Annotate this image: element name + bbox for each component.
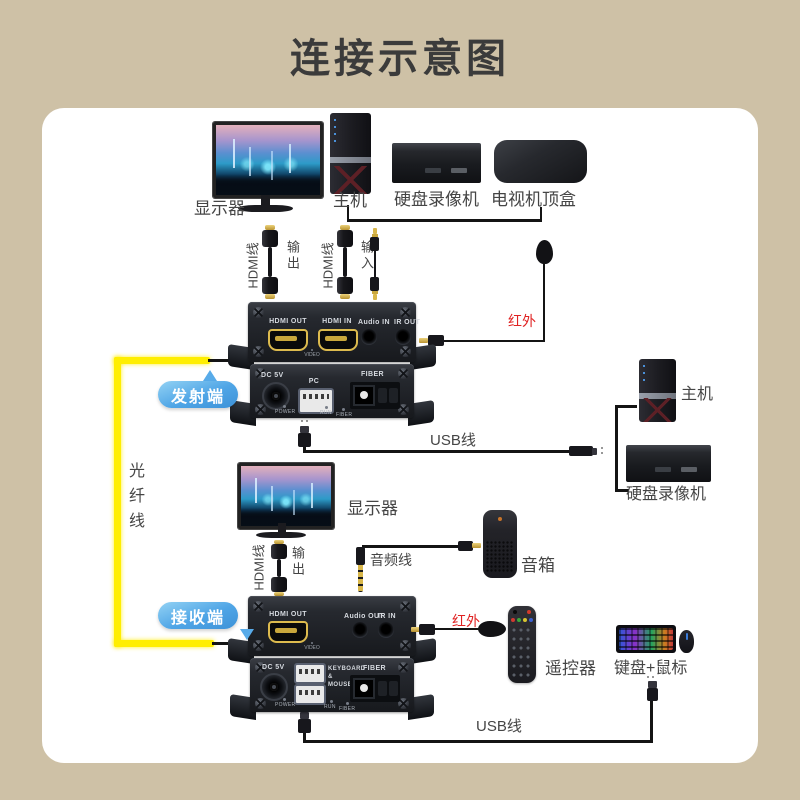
hdmi-cable-icon	[271, 540, 287, 596]
audio-in-port-label: Audio IN	[358, 319, 390, 326]
ir-plug-tip	[419, 338, 428, 343]
stb-label: 电视机顶盒	[491, 185, 576, 210]
hdmi-port	[268, 621, 308, 643]
power-led-label: POWER	[275, 702, 295, 708]
dc-port-label: DC 5V	[261, 372, 284, 379]
right-pc-label: 主机	[681, 380, 713, 404]
screw-icon	[253, 307, 264, 318]
pc-label: 主机	[333, 186, 367, 211]
badge-pointer	[240, 629, 254, 640]
hdmi-cable-wire	[268, 247, 272, 277]
screw-icon	[398, 368, 409, 379]
monitor-icon	[213, 122, 323, 198]
pc-tower-icon	[330, 113, 371, 194]
right-dvr-label: 硬盘录像机	[626, 480, 706, 504]
pc-led-strip	[643, 365, 645, 383]
monitor-icon	[238, 463, 334, 529]
power-led	[283, 405, 286, 408]
hdmi-plug-body	[337, 230, 353, 247]
transmitter-badge: 发射端	[158, 381, 238, 408]
ir-plug-body	[419, 624, 435, 635]
kbm-port-label: &	[328, 674, 333, 680]
kbm-label: 键盘+鼠标	[614, 654, 687, 678]
run-led-label: RUN	[324, 704, 336, 710]
monitor-stand	[238, 205, 293, 212]
video-led	[311, 642, 313, 644]
hdmi-cable-wire	[277, 559, 281, 577]
screw-icon	[253, 346, 264, 357]
keyboard-keys	[619, 628, 673, 650]
fiber-tab	[389, 388, 398, 403]
page-title: 连接示意图	[0, 26, 800, 84]
ir-in-port-label: IR IN	[378, 613, 396, 620]
receiver-bottom-panel: DC 5V KEYBOARD & MOUSE FIBER POWER RUN F…	[250, 658, 414, 712]
fiber-ferrule	[353, 385, 375, 406]
fiber-port-label: FIBER	[361, 371, 384, 378]
usb-plug-icon	[647, 688, 658, 701]
fiber-cable-line	[114, 640, 214, 647]
hdmi-out-port-label: HDMI OUT	[262, 611, 314, 618]
ir-label-tx: 红外	[508, 311, 536, 331]
audio-out-jack	[352, 622, 368, 638]
usb-cable-label-top: USB线	[430, 429, 476, 450]
usb-cable-line	[650, 700, 653, 743]
hdmi-cable-icon	[337, 225, 353, 299]
audio-plug-body	[458, 541, 473, 551]
usb-plug-icon	[300, 712, 309, 719]
keyboard-icon	[616, 625, 676, 653]
audio-jack-tip	[358, 565, 363, 592]
hdmi-direction-label: 输出	[288, 546, 307, 578]
screw-icon	[400, 346, 411, 357]
video-label: VIDEO	[303, 645, 321, 651]
settop-box-icon	[494, 140, 587, 183]
hdmi-direction-label: 输出	[283, 240, 302, 272]
hdmi-plug-body	[262, 230, 278, 247]
dvr-icon	[392, 143, 481, 183]
pc-front-pattern	[639, 398, 676, 422]
fiber-port	[350, 675, 400, 702]
fiber-tab	[378, 388, 387, 403]
pc-tower-icon	[639, 359, 676, 422]
power-led-label: POWER	[275, 409, 295, 415]
remote-color-buttons	[511, 618, 533, 622]
fiber-port	[350, 382, 400, 409]
dc-jack	[260, 673, 288, 701]
power-led	[283, 698, 286, 701]
dc-port-label: DC 5V	[262, 664, 285, 671]
pc-port-label: PC	[298, 378, 330, 385]
fiber-tab	[389, 681, 398, 696]
audio-cable-icon	[370, 228, 379, 300]
transmitter-front-panel: HDMI OUT HDMI IN Audio IN IR OUT VIDEO	[248, 302, 416, 362]
audio-plug-tip	[373, 294, 377, 300]
screw-icon	[400, 307, 411, 318]
audio-jack-body	[356, 547, 365, 565]
fiber-cable-label: 光纤线	[122, 462, 146, 537]
hdmi-plug-body	[271, 544, 287, 559]
connection-diagram-page: 连接示意图 光纤线 红外 USB线 音频线 USB线 显示器	[0, 0, 800, 800]
hdmi-cable-label: HDMI线	[249, 538, 268, 598]
audio-plug-tip	[472, 543, 481, 548]
fiber-tab	[378, 681, 387, 696]
usb-plug-icon	[569, 446, 593, 456]
ir-cable-line	[443, 340, 545, 342]
hdmi-plug-tip	[265, 294, 275, 299]
remote-label: 遥控器	[545, 654, 596, 679]
audio-plug-body	[370, 277, 379, 291]
connector-dots	[301, 420, 303, 422]
kbm-port-label: MOUSE	[328, 682, 352, 688]
fiber-cable-line	[114, 357, 121, 647]
ir-emitter-icon	[536, 240, 553, 264]
usb-plug-icon	[298, 433, 311, 447]
fiber-port-label: FIBER	[363, 665, 386, 672]
ir-out-port-label: IR OUT	[394, 319, 420, 326]
fiber-ferrule	[353, 678, 375, 699]
screw-icon	[400, 640, 411, 651]
remote-keypad	[512, 628, 532, 680]
hdmi-cable-wire	[343, 247, 347, 277]
bracket-line	[615, 405, 637, 408]
badge-pointer	[203, 370, 217, 381]
ir-in-jack	[378, 622, 394, 638]
dvr-icon	[626, 445, 711, 482]
fiber-led	[346, 702, 349, 705]
audio-cable-wire	[374, 251, 376, 277]
usb-port	[294, 684, 326, 705]
fiber-led-label: FIBER	[339, 706, 355, 712]
ir-cable-line	[434, 628, 480, 630]
hdmi-cable-label: HDMI线	[243, 236, 262, 296]
run-led-label: RUN	[320, 410, 332, 416]
usb-plug-icon	[592, 448, 597, 455]
hdmi-plug-body	[262, 277, 278, 294]
screw-icon	[253, 640, 264, 651]
hdmi-plug-tip	[340, 294, 350, 299]
hdmi-port	[318, 329, 358, 351]
audio-cable-line	[362, 545, 458, 548]
video-led	[311, 349, 313, 351]
connector-dots	[601, 447, 603, 449]
usb-cable-label-bottom: USB线	[476, 715, 522, 736]
receiver-badge: 接收端	[158, 602, 238, 629]
mouse-icon	[679, 630, 694, 653]
hdmi-cable-label: HDMI线	[318, 236, 337, 296]
kbm-port-label: KEYBOARD	[328, 666, 366, 672]
screw-icon	[398, 662, 409, 673]
speaker-icon	[483, 510, 517, 578]
transmitter-bottom-panel: DC 5V PC FIBER POWER RUN FIBER	[250, 364, 414, 418]
usb-plug-icon	[300, 426, 309, 433]
screw-icon	[255, 698, 266, 709]
remote-ir-dot	[513, 610, 517, 614]
ir-out-jack	[395, 329, 411, 345]
remote-power-button	[527, 610, 531, 614]
fiber-led-label: FIBER	[336, 412, 352, 418]
hdmi-cable-icon	[262, 225, 278, 299]
run-led	[330, 700, 333, 703]
run-led	[325, 406, 328, 409]
fiber-cable-line	[114, 357, 210, 364]
hdmi-in-port-label: HDMI IN	[314, 318, 360, 325]
screw-icon	[400, 601, 411, 612]
receiver-front-panel: HDMI OUT VIDEO Audio OUT IR IN	[248, 596, 416, 656]
mid-monitor-label: 显示器	[347, 494, 398, 519]
usb-plug-icon	[648, 681, 657, 688]
dvr-label: 硬盘录像机	[394, 185, 479, 210]
usb-cable-line	[303, 740, 653, 743]
audio-plug-body	[370, 237, 379, 251]
bracket-line	[615, 405, 618, 492]
speaker-label: 音箱	[521, 551, 555, 576]
usb-cable-line	[303, 450, 569, 453]
pc-led-strip	[334, 119, 336, 145]
hdmi-out-port-label: HDMI OUT	[262, 318, 314, 325]
audio-in-jack	[361, 329, 377, 345]
screw-icon	[255, 404, 266, 415]
video-label: VIDEO	[303, 352, 321, 358]
monitor-label: 显示器	[194, 194, 245, 219]
hdmi-port	[268, 329, 308, 351]
audio-cable-label: 音频线	[370, 550, 412, 570]
ir-cable-line	[543, 262, 545, 342]
usb-plug-icon	[298, 719, 311, 733]
fiber-led	[342, 408, 345, 411]
pc-band	[330, 157, 371, 163]
remote-icon	[508, 606, 536, 683]
hdmi-plug-body	[271, 577, 287, 592]
hdmi-plug-body	[337, 277, 353, 294]
bracket-line	[347, 219, 542, 222]
usb-port	[294, 663, 326, 684]
